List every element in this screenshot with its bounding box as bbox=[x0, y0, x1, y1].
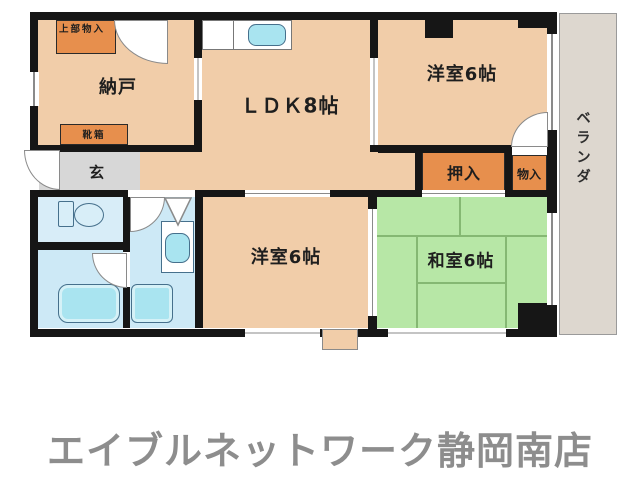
washbasin-bowl-icon bbox=[165, 233, 190, 263]
label-nando: 納戸 bbox=[99, 73, 137, 99]
wall-pillar bbox=[425, 12, 453, 38]
window bbox=[547, 34, 557, 130]
wall-segment bbox=[123, 197, 130, 252]
footer: エイブルネットワーク静岡南店 bbox=[0, 420, 640, 475]
sliding-door bbox=[194, 58, 202, 100]
label-oshiire: 押入 bbox=[447, 160, 481, 184]
wall-segment bbox=[378, 145, 512, 153]
kitchen-sink-icon bbox=[248, 24, 286, 46]
tatami-line bbox=[416, 282, 507, 284]
wall-segment bbox=[415, 145, 422, 197]
wall-top bbox=[30, 12, 557, 20]
sliding-door-fusuma bbox=[422, 190, 505, 197]
wall-segment bbox=[203, 190, 245, 197]
window bbox=[547, 213, 557, 305]
wall-segment bbox=[123, 287, 130, 328]
window bbox=[245, 329, 320, 337]
wall-segment bbox=[195, 190, 203, 197]
wall-segment bbox=[30, 190, 128, 197]
wall-segment bbox=[38, 242, 123, 250]
wall-segment bbox=[370, 145, 378, 152]
label-veranda: ベランダ bbox=[572, 110, 593, 188]
door-opening bbox=[128, 190, 195, 197]
washing-machine-icon bbox=[131, 284, 173, 323]
window bbox=[29, 72, 39, 106]
kitchen-counter-divider bbox=[233, 20, 234, 50]
sliding-door bbox=[245, 190, 330, 197]
label-yoshitsu-bottom: 洋室6帖 bbox=[251, 243, 322, 269]
wall-segment bbox=[505, 190, 557, 197]
label-ldk: ＬＤＫ8帖 bbox=[241, 90, 340, 119]
tatami-line bbox=[377, 235, 547, 237]
wall-segment bbox=[194, 12, 202, 58]
floor-plan: 納戸 ＬＤＫ8帖 洋室6帖 押入 物入 上部物入 靴箱 玄 洋室6帖 和室6帖 … bbox=[0, 0, 640, 480]
wall-pillar bbox=[518, 303, 557, 329]
label-monoire: 物入 bbox=[517, 166, 541, 183]
label-kutsubako: 靴箱 bbox=[82, 127, 105, 141]
sliding-door bbox=[370, 58, 378, 145]
label-genkan: 玄 bbox=[89, 162, 105, 183]
porch-step bbox=[322, 329, 358, 350]
wall-pillar bbox=[518, 12, 557, 28]
toilet-tank-icon bbox=[58, 201, 74, 227]
wall-segment bbox=[368, 316, 377, 329]
store-name: エイブルネットワーク静岡南店 bbox=[47, 429, 593, 473]
label-washitsu: 和室6帖 bbox=[428, 247, 495, 272]
bathtub-icon bbox=[58, 284, 120, 323]
label-yoshitsu-top: 洋室6帖 bbox=[427, 60, 498, 86]
label-joubu-monoire: 上部物入 bbox=[59, 21, 105, 35]
wall-segment bbox=[370, 12, 378, 58]
window bbox=[388, 329, 506, 337]
tatami-line bbox=[459, 197, 461, 237]
wall-segment bbox=[377, 190, 416, 197]
folding-door-icon bbox=[164, 197, 192, 227]
toilet-bowl-icon bbox=[74, 203, 104, 227]
hallway-strip bbox=[140, 152, 415, 192]
wall-segment bbox=[195, 197, 203, 328]
wall-segment bbox=[368, 197, 377, 209]
sliding-door bbox=[368, 209, 377, 316]
